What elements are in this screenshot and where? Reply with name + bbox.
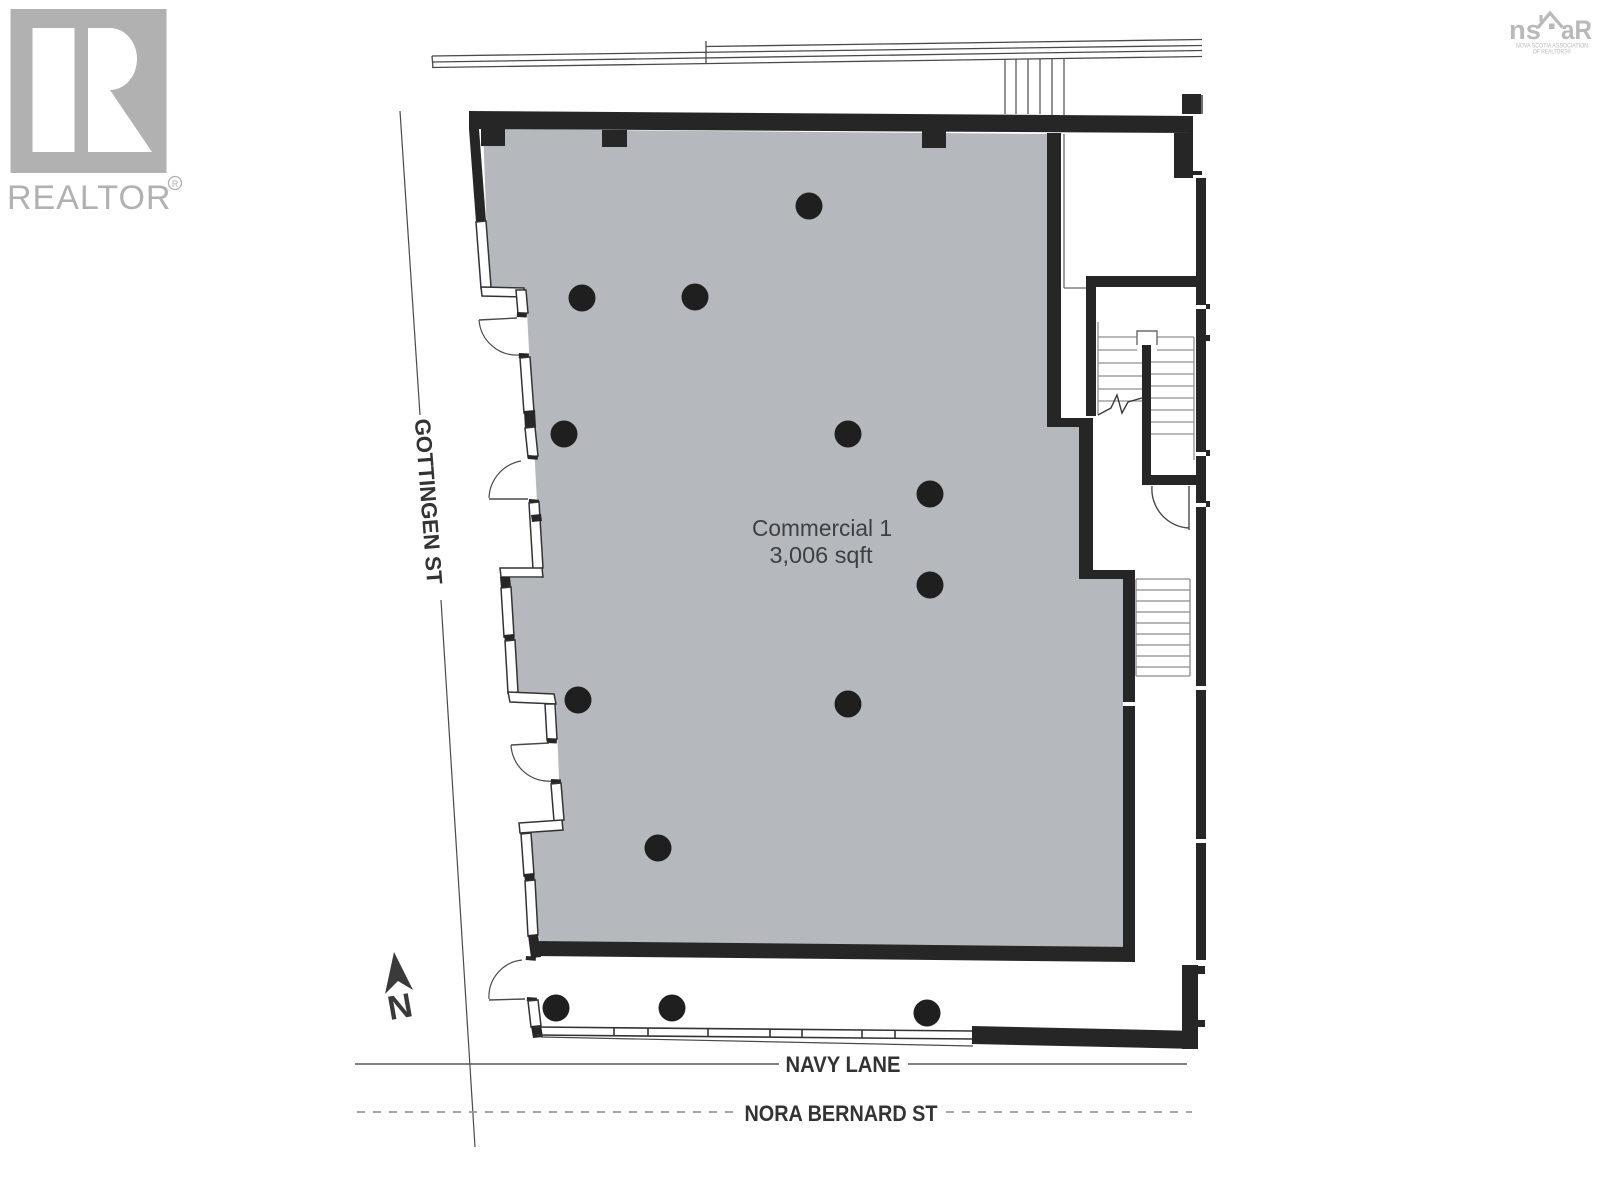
svg-text:aR: aR bbox=[1561, 15, 1592, 45]
svg-text:NORA BERNARD ST: NORA BERNARD ST bbox=[745, 1101, 939, 1126]
svg-text:GOTTINGEN ST: GOTTINGEN ST bbox=[410, 418, 447, 586]
svg-text:ns: ns bbox=[1509, 15, 1541, 45]
svg-text:REALTOR: REALTOR bbox=[7, 179, 171, 217]
svg-text:3,006 sqft: 3,006 sqft bbox=[770, 542, 873, 568]
svg-text:N: N bbox=[385, 986, 416, 1028]
svg-text:Commercial 1: Commercial 1 bbox=[752, 515, 892, 541]
svg-text:R: R bbox=[172, 179, 179, 189]
svg-text:NAVY LANE: NAVY LANE bbox=[786, 1052, 901, 1077]
svg-text:OF REALTORS®: OF REALTORS® bbox=[1533, 49, 1571, 56]
